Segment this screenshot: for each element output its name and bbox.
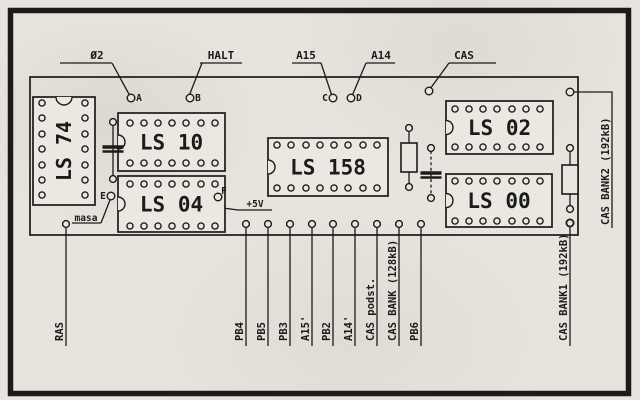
chip-ls-02-pin (466, 144, 472, 150)
chip-ls-02-pin (466, 106, 472, 112)
pad-pb4 (243, 221, 250, 228)
chip-ls-10-pin (169, 120, 175, 126)
chip-ls-10-pin (155, 120, 161, 126)
chip-ls-74-pin (82, 115, 88, 121)
chip-ls-10-label: LS 10 (140, 131, 203, 155)
chip-ls-00-pin (466, 218, 472, 224)
pad-a15 (309, 221, 316, 228)
chip-ls-00-pin (480, 218, 486, 224)
chip-ls-158-pin (331, 142, 337, 148)
leader-line-a15 (321, 63, 332, 96)
chip-ls-04-pin (212, 181, 218, 187)
chip-ls-00-pin (509, 178, 515, 184)
chip-ls-02-pin (537, 144, 543, 150)
chip-ls-04-pin (183, 223, 189, 229)
chip-ls-04-pin (169, 181, 175, 187)
leader-line-a14 (352, 63, 366, 96)
test-point-b-letter: B (195, 93, 201, 104)
signal-label-pb2: PB2 (321, 322, 333, 341)
power-label-5v: +5V (246, 199, 263, 210)
signal-label-ras: RAS (54, 322, 66, 341)
resistor-1-body (401, 143, 417, 172)
chip-ls-00-pin (523, 218, 529, 224)
pad-cas-podst (374, 221, 381, 228)
chip-ls-74-label: LS 74 (52, 121, 76, 181)
chip-ls-10-pin (183, 160, 189, 166)
chip-ls-158-pin (303, 185, 309, 191)
chip-ls-74-pin (82, 131, 88, 137)
chip-ls-10-pin (127, 120, 133, 126)
signal-label-cas-bank2-192kb: CAS BANK2 (192kB) (600, 118, 612, 225)
chip-ls-158-label: LS 158 (290, 156, 366, 180)
scanned-diagram-page: LS 74LS 10LS 04LS 158LS 02LS 00Ø2HALTA15… (0, 0, 640, 400)
test-point-e-pad (107, 192, 115, 200)
cas-pad (425, 87, 433, 95)
chip-ls-04-pin (212, 223, 218, 229)
chip-ls-74-pin (82, 162, 88, 168)
chip-ls-74-pin (39, 162, 45, 168)
chip-ls-10-pin (198, 160, 204, 166)
resistor-2-body (562, 165, 578, 194)
capacitor-1-pad (110, 176, 117, 183)
signal-label-a14: A14 (371, 49, 391, 62)
pad-pb3 (287, 221, 294, 228)
resistor-1-pad (406, 184, 413, 191)
chip-ls-158-pin (317, 185, 323, 191)
chip-ls-00-pin (452, 218, 458, 224)
leader-line-cas (430, 63, 449, 89)
chip-ls-00-label: LS 00 (467, 189, 530, 213)
capacitor-1-pad (110, 119, 117, 126)
chip-ls-158-pin (345, 185, 351, 191)
chip-ls-10-pin (212, 120, 218, 126)
test-point-b-pad (186, 94, 194, 102)
chip-ls-158-pin (288, 142, 294, 148)
chip-ls-158-pin (274, 185, 280, 191)
leader-line-halt (189, 63, 202, 96)
chip-ls-00-pin (523, 178, 529, 184)
signal-label-cas: CAS (454, 49, 474, 62)
top-right-pad (566, 88, 574, 96)
chip-ls-04-pin (141, 223, 147, 229)
chip-ls-04-pin (155, 181, 161, 187)
chip-ls-00-pin (537, 218, 543, 224)
chip-ls-02-pin (452, 144, 458, 150)
chip-ls-02-pin (523, 144, 529, 150)
chip-ls-02-pin (480, 144, 486, 150)
chip-ls-10-pin (141, 120, 147, 126)
test-point-a-pad (127, 94, 135, 102)
chip-ls-02-pin (537, 106, 543, 112)
chip-ls-04-label: LS 04 (140, 193, 203, 217)
resistor-2-pad (567, 206, 574, 213)
ground-label-masa: masa (75, 213, 98, 224)
signal-label-a14: A14' (343, 316, 355, 341)
pad-a14 (352, 221, 359, 228)
test-point-c-pad (329, 94, 337, 102)
resistor-2-pad (567, 145, 574, 152)
masa-leader-line (101, 200, 110, 223)
chip-ls-158-pin (303, 142, 309, 148)
chip-ls-04-pin (155, 223, 161, 229)
chip-ls-10-pin (155, 160, 161, 166)
test-point-a-letter: A (136, 93, 142, 104)
chip-ls-74-pin (39, 100, 45, 106)
resistor-1-pad (406, 125, 413, 132)
chip-ls-10-pin (198, 120, 204, 126)
chip-ls-04-pin (198, 181, 204, 187)
chip-ls-158-pin (374, 185, 380, 191)
chip-ls-158-pin (360, 142, 366, 148)
chip-ls-10-pin (141, 160, 147, 166)
chip-ls-02-pin (509, 106, 515, 112)
chip-ls-10-pin (212, 160, 218, 166)
pad-pb5 (265, 221, 272, 228)
chip-ls-04-pin (183, 181, 189, 187)
chip-ls-158-pin (331, 185, 337, 191)
capacitor-2-pad (428, 145, 435, 152)
test-point-e-letter: E (100, 191, 106, 202)
chip-ls-02-pin (452, 106, 458, 112)
chip-ls-00-pin (494, 218, 500, 224)
chip-ls-158-pin (288, 185, 294, 191)
signal-label-2: Ø2 (89, 49, 103, 62)
chip-ls-74-pin (82, 146, 88, 152)
signal-label-pb6: PB6 (409, 322, 421, 341)
chip-ls-10-pin (169, 160, 175, 166)
pad-pb2 (330, 221, 337, 228)
chip-ls-74-pin (39, 115, 45, 121)
chip-ls-74-pin (82, 177, 88, 183)
signal-label-cas-podst: CAS podst. (365, 278, 377, 341)
signal-label-pb4: PB4 (234, 322, 246, 341)
chip-ls-158-pin (274, 142, 280, 148)
chip-ls-00-pin (452, 178, 458, 184)
chip-ls-02-pin (494, 106, 500, 112)
signal-label-halt: HALT (208, 49, 235, 62)
chip-ls-02-pin (523, 106, 529, 112)
chip-ls-00-pin (509, 218, 515, 224)
chip-ls-74-pin (39, 131, 45, 137)
chip-ls-02-pin (480, 106, 486, 112)
chip-ls-00-pin (480, 178, 486, 184)
chip-ls-04-pin (127, 223, 133, 229)
signal-label-pb5: PB5 (256, 322, 268, 341)
chip-ls-158-pin (374, 142, 380, 148)
chip-ls-00-pin (537, 178, 543, 184)
chip-ls-00-pin (466, 178, 472, 184)
chip-ls-74-pin (82, 192, 88, 198)
chip-ls-02-label: LS 02 (468, 116, 531, 140)
pad-cas-bank-128kb (396, 221, 403, 228)
chip-ls-04-pin (141, 181, 147, 187)
chip-ls-74-pin (39, 192, 45, 198)
signal-label-cas-bank-128kb: CAS BANK (128kB) (387, 240, 399, 341)
chip-ls-00-pin (494, 178, 500, 184)
chip-ls-10-pin (183, 120, 189, 126)
chip-ls-158-pin (360, 185, 366, 191)
chip-ls-04-pin (198, 223, 204, 229)
chip-ls-74-pin (39, 177, 45, 183)
signal-label-cas-bank1-192kb: CAS BANK1 (192kB) (558, 234, 570, 341)
chip-ls-04-pin (169, 223, 175, 229)
signal-label-a15: A15' (300, 316, 312, 341)
pad-pb6 (418, 221, 425, 228)
chip-ls-158-pin (317, 142, 323, 148)
chip-ls-10-pin (127, 160, 133, 166)
chip-ls-158-pin (345, 142, 351, 148)
capacitor-2-pad (428, 195, 435, 202)
chip-ls-04-pin (127, 181, 133, 187)
chip-ls-74-pin (39, 146, 45, 152)
test-point-d-letter: D (356, 93, 362, 104)
chip-ls-74-pin (82, 100, 88, 106)
chip-ls-02-pin (509, 144, 515, 150)
signal-label-a15: A15 (296, 49, 316, 62)
test-point-f-letter: F (221, 186, 227, 197)
test-point-d-pad (347, 94, 355, 102)
pcb-diagram-svg: LS 74LS 10LS 04LS 158LS 02LS 00Ø2HALTA15… (0, 0, 640, 400)
leader-line-2 (112, 63, 130, 96)
signal-label-pb3: PB3 (278, 322, 290, 341)
pad-cas-bank1-192kb (567, 220, 574, 227)
pad-ras (63, 221, 70, 228)
chip-ls-02-pin (494, 144, 500, 150)
test-point-c-letter: C (322, 93, 328, 104)
